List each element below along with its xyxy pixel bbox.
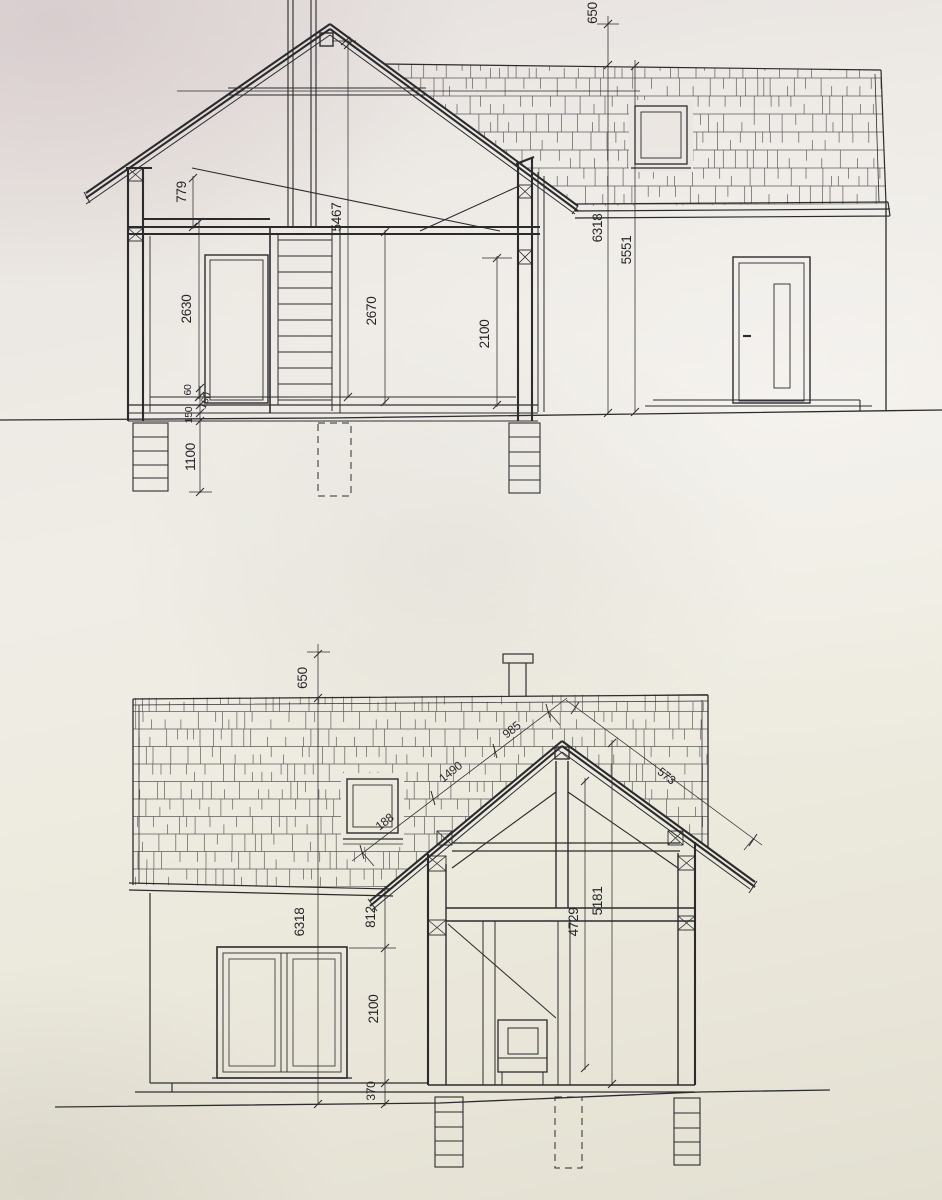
right-wall-blocking <box>518 185 532 264</box>
bottom-drawing: 650 6318 812 2100 370 4729 5181 188 1490… <box>55 644 830 1168</box>
dim-label-6318: 6318 <box>590 214 605 243</box>
dim-label-5181: 5181 <box>590 887 605 916</box>
window-pane-left <box>229 959 275 1066</box>
foundation-pier-right <box>674 1098 700 1165</box>
left-wall <box>126 168 152 421</box>
interior-posts <box>483 921 570 1085</box>
staircase <box>270 227 340 413</box>
stair-stringer <box>448 924 556 1018</box>
roof-window-mask <box>629 100 693 172</box>
dim-label-2630: 2630 <box>179 295 194 324</box>
left-wall-blocking <box>128 168 143 241</box>
dim-label-2100: 2100 <box>477 320 492 349</box>
roof-top-edge-inner <box>133 700 708 883</box>
foundation-footing-dashed <box>318 423 351 496</box>
stove <box>498 1020 547 1085</box>
top-drawing: 650 6318 5551 5467 779 2630 2670 2100 60… <box>0 0 942 496</box>
bottom-cross-section <box>135 741 757 1092</box>
dim-label-1100: 1100 <box>183 443 198 471</box>
dim-label-1490: 1490 <box>436 758 465 785</box>
dim-label-650: 650 <box>295 667 310 689</box>
foundation-pier-left <box>133 423 168 491</box>
roof-slope-right-inner <box>330 35 578 214</box>
attic-wind-braces <box>192 168 519 231</box>
gable-slope-right <box>562 741 755 887</box>
elevation-window <box>212 947 352 1078</box>
chimney <box>503 654 533 697</box>
ground-line <box>0 410 942 420</box>
dim-label-5467: 5467 <box>329 203 344 232</box>
dim-label-779: 779 <box>174 181 189 203</box>
bottom-dimension-lines <box>307 644 762 1108</box>
dim-label-2100: 2100 <box>366 995 381 1024</box>
dim-label-4729: 4729 <box>566 908 581 937</box>
top-dimension-labels: 650 6318 5551 5467 779 2630 2670 2100 60… <box>174 2 634 471</box>
foundation-pier-left <box>435 1097 463 1167</box>
foundation-pier-right <box>509 423 540 493</box>
bottom-front-elevation <box>129 654 712 1083</box>
door-step <box>645 400 872 411</box>
dim-label-650: 650 <box>585 2 600 24</box>
door-glass-panel <box>774 284 790 388</box>
right-wall-blocking <box>678 856 695 930</box>
dim-label-60: 60 <box>182 384 194 396</box>
interior-door <box>205 255 268 403</box>
dim-label-5551: 5551 <box>619 236 634 265</box>
foundation-footing-dashed <box>555 1097 582 1168</box>
wing-roof-inner-edge <box>875 74 879 202</box>
roof-window-mask <box>341 773 404 847</box>
dim-label-2670: 2670 <box>364 297 379 326</box>
stove-door <box>508 1028 538 1054</box>
dim-label-985: 985 <box>500 718 524 741</box>
roof-slope-right <box>330 24 578 211</box>
window-mullion <box>281 953 287 1072</box>
dim-label-150: 150 <box>183 406 195 423</box>
top-cross-section <box>84 0 640 421</box>
wing-fascia <box>575 202 890 218</box>
left-wall-blocking <box>428 856 446 935</box>
bottom-foundations <box>435 1097 700 1168</box>
dim-label-6318: 6318 <box>292 908 307 937</box>
collar-beam <box>452 843 680 851</box>
collar-tie <box>228 88 426 95</box>
dim-label-812: 812 <box>363 906 378 928</box>
wing-corner-lines <box>538 172 544 412</box>
right-wall <box>516 157 534 421</box>
entry-door <box>733 257 810 403</box>
window-pane-right <box>293 959 335 1066</box>
blueprint-sheet: 650 6318 5551 5467 779 2630 2670 2100 60… <box>0 0 942 1200</box>
king-post <box>556 761 568 908</box>
dim-label-370: 370 <box>364 1081 378 1101</box>
